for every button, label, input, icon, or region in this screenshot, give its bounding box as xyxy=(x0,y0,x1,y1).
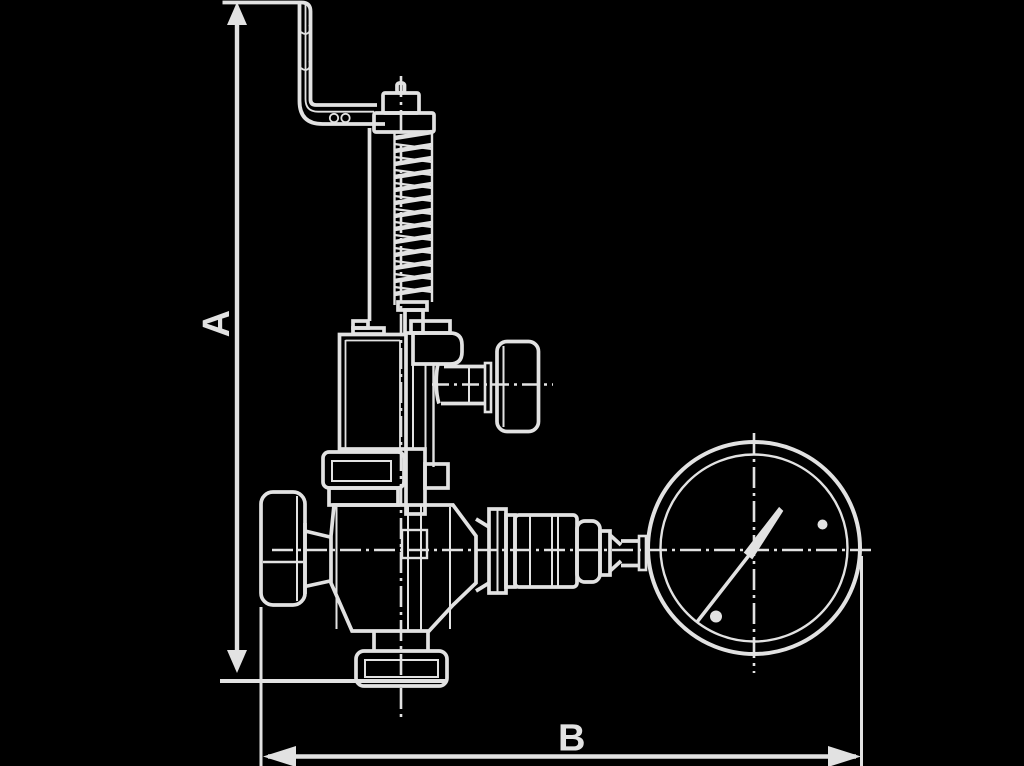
svg-text:A: A xyxy=(196,310,238,337)
svg-text:B: B xyxy=(558,718,585,760)
